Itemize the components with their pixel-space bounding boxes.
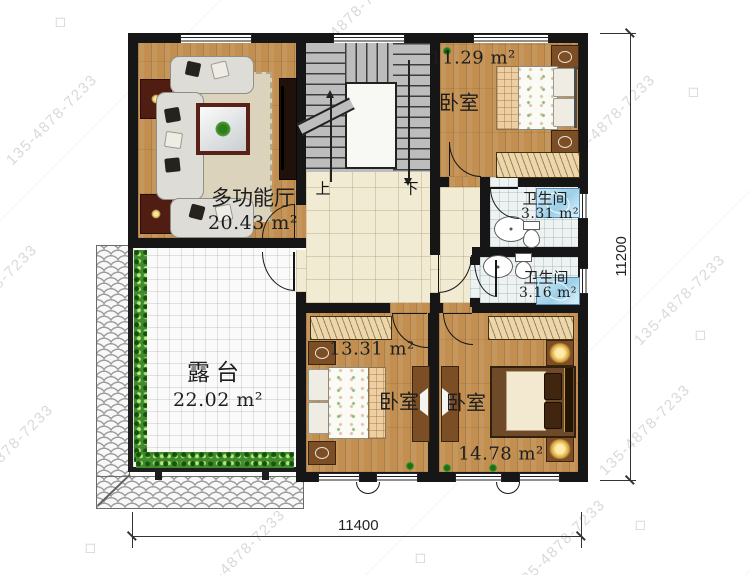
terrace-wall-left: [128, 248, 133, 472]
stair-up-label: 上: [315, 178, 330, 199]
door-leaf: [294, 204, 296, 238]
bed: [328, 367, 370, 439]
door-leaf: [293, 252, 295, 290]
watermark-text: 135-4878-7233: [0, 241, 41, 339]
watermark-diamond-icon: ◇: [408, 546, 431, 569]
sofa-pillow: [185, 61, 202, 78]
floor-plan: 135-4878-7233 135-4878-7233 135-4878-723…: [0, 0, 750, 575]
window: [455, 473, 502, 482]
window: [376, 473, 418, 482]
room-area-bedroom-mid: 13.31 m²: [329, 339, 415, 360]
watermark-diamond-icon: ◇: [681, 80, 704, 103]
wall-terrace-bedroom: [296, 292, 306, 472]
door-threshold: [390, 303, 430, 313]
bed-foot-blanket: [496, 66, 520, 130]
door-leaf: [495, 260, 497, 296]
window: [180, 34, 252, 43]
dim-extension-line: [581, 512, 582, 548]
bed-pillow: [308, 369, 330, 401]
door-threshold: [296, 250, 306, 292]
wardrobe: [488, 316, 574, 340]
sofa-pillow: [164, 131, 183, 149]
room-name-bedroom-right: 卧室: [446, 387, 486, 416]
sofa-pillow: [164, 157, 180, 172]
sofa-pillow: [164, 107, 181, 123]
room-name-bedroom-mid: 卧室: [379, 386, 419, 415]
plant-icon: [406, 462, 414, 470]
dim-line-bottom: [132, 536, 582, 537]
room-area-terrace: 22.02 m²: [173, 389, 263, 411]
terrace-post: [262, 472, 269, 480]
coffee-table: [196, 103, 250, 155]
bed-headboard: [574, 66, 577, 128]
stair-treads-top: [345, 43, 393, 82]
bed-pillow: [553, 98, 576, 127]
nightstand: [308, 441, 336, 465]
window: [333, 34, 405, 43]
window: [473, 34, 549, 43]
wall-left: [128, 33, 138, 248]
dim-line-right: [630, 33, 631, 481]
door-threshold: [449, 177, 480, 187]
plant-icon: [489, 464, 497, 472]
hedge-plants-bottom: [136, 452, 294, 468]
wardrobe: [310, 316, 392, 340]
wall-segment: [430, 303, 443, 313]
room-area-bedroom-top: 11.29 m²: [430, 48, 516, 69]
room-name-terrace: 露台: [187, 353, 245, 387]
wall-hall-bedroom: [296, 303, 390, 313]
terrace-post: [155, 472, 162, 480]
watermark-text: 135-4878-7233: [3, 71, 101, 169]
stair-arrow-down-line: [408, 60, 410, 180]
nightstand-lamp: [546, 436, 574, 462]
bed-pillow: [544, 402, 562, 429]
wall-right: [578, 33, 588, 482]
dim-width-label: 11400: [338, 517, 379, 534]
window: [519, 473, 560, 482]
door-leaf: [392, 313, 427, 315]
plant-icon: [443, 464, 451, 472]
dim-extension-line: [132, 512, 133, 548]
bed: [518, 66, 558, 130]
dim-height-label: 11200: [613, 236, 630, 277]
wall-segment: [480, 177, 490, 187]
stair-arrow-up-head: [326, 90, 334, 98]
bed-headboard: [564, 368, 573, 432]
door-leaf: [490, 187, 518, 189]
roof-scallop-border-bottom: [96, 476, 304, 509]
window: [318, 473, 360, 482]
watermark-diamond-icon: ◇: [48, 10, 71, 33]
door-leaf: [449, 142, 451, 176]
stair-arrow-up-line: [330, 96, 332, 182]
room-name-bedroom-top: 卧室: [439, 87, 479, 116]
watermark-text: 135-4878-7233: [0, 401, 57, 499]
wall-segment: [430, 177, 449, 187]
door-threshold: [490, 177, 518, 187]
wardrobe: [496, 152, 580, 178]
stair-down-label: 下: [403, 178, 418, 199]
nightstand: [551, 130, 579, 154]
watermark-text: 135-4878-7233: [596, 381, 694, 479]
corner-cabinet: [140, 194, 172, 234]
bed-pillow: [553, 68, 576, 97]
wall-living-terrace: [128, 238, 306, 248]
room-area-bath-top: 3.31 m²: [521, 206, 579, 222]
hedge-plants-left: [134, 250, 147, 462]
watermark-text: 135-4878-7233: [631, 251, 729, 349]
watermark-diamond-icon: ◇: [628, 513, 651, 536]
bed-pillow: [544, 373, 562, 400]
room-area-bedroom-right: 14.78 m²: [458, 444, 544, 465]
bed-blanket: [506, 371, 546, 431]
sofa-top: [170, 56, 254, 94]
wall-bedroom-bath: [518, 177, 588, 187]
window-vent: [356, 482, 380, 494]
door-leaf: [443, 313, 472, 315]
watermark-diamond-icon: ◇: [78, 536, 101, 559]
watermark-diamond-icon: ◇: [688, 323, 711, 346]
roof-scallop-border-left: [96, 245, 130, 478]
bed-pillow: [308, 402, 330, 434]
toilet: [523, 229, 540, 248]
door-leaf: [438, 255, 440, 292]
stair-treads-right: [393, 43, 430, 172]
wall-bath-top-left: [480, 187, 490, 247]
nightstand-lamp: [546, 340, 574, 366]
door-threshold: [443, 303, 472, 313]
watermark-text: 135-4878-7233: [191, 506, 289, 575]
room-area-bath-bottom: 3.16 m²: [519, 285, 577, 301]
window-vent: [496, 482, 520, 494]
tv-screen: [281, 86, 284, 170]
stair-void: [345, 82, 397, 169]
